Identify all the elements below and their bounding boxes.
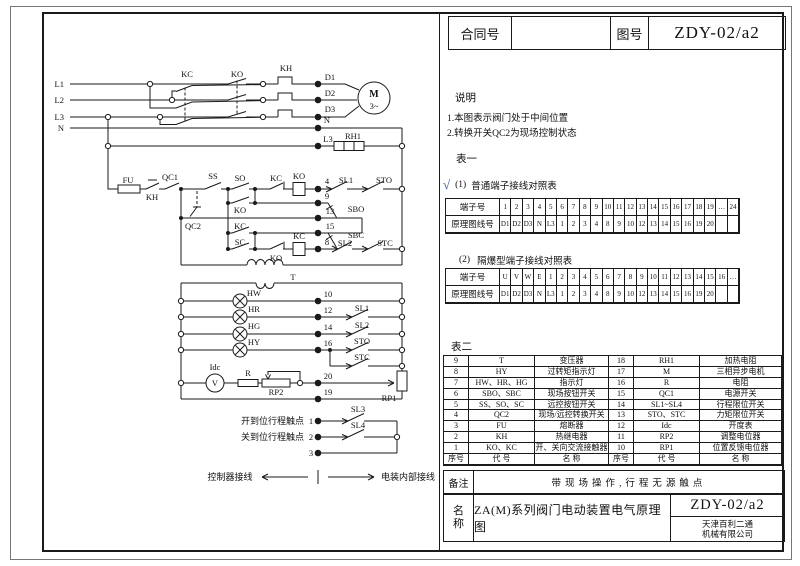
- schematic-label: 9: [325, 191, 329, 201]
- component-cell: FU: [469, 421, 535, 432]
- schematic-label: N: [324, 115, 330, 125]
- component-cell: 2: [444, 432, 469, 443]
- schematic-label: SO: [235, 173, 246, 183]
- sub1-label: (1): [455, 180, 466, 190]
- schematic-label: SL1: [355, 303, 369, 313]
- terminal-cell: 12: [671, 269, 682, 286]
- component-cell: 现场/远控转换开关: [535, 410, 609, 421]
- schematic-label: 2: [309, 432, 313, 442]
- terminal-cell: 14: [659, 286, 670, 303]
- terminal-cell: D1: [500, 286, 511, 303]
- name-label: 名 称: [444, 495, 474, 541]
- power-circuit: [70, 77, 402, 128]
- note-item: 1.本图表示阀门处于中间位置: [447, 110, 568, 124]
- terminal-cell: 16: [682, 216, 693, 233]
- terminal-cell: 16: [682, 286, 693, 303]
- component-header-cell: 序号: [609, 454, 634, 465]
- terminal-cell: D1: [500, 216, 511, 233]
- check-icon: √: [443, 177, 450, 193]
- component-header-cell: 代 号: [469, 454, 535, 465]
- terminal-cell: 2: [568, 286, 579, 303]
- component-cell: T: [469, 356, 535, 367]
- schematic-label: T: [290, 272, 296, 282]
- schematic-label: 16: [324, 338, 333, 348]
- component-cell: KH: [469, 432, 535, 443]
- schematic-label: KO: [234, 205, 246, 215]
- terminal-cell: 7: [568, 199, 579, 216]
- terminal-cell: [716, 216, 727, 233]
- schematic-label: D1: [325, 72, 335, 82]
- component-cell: 11: [609, 432, 634, 443]
- terminal-cell: 19: [694, 216, 705, 233]
- schematic-label: M: [369, 89, 379, 100]
- component-cell: 过转矩指示灯: [535, 367, 609, 378]
- terminal-cell: 14: [694, 269, 705, 286]
- component-cell: SS、SO、SC: [469, 400, 535, 411]
- schematic-label: KC: [293, 231, 305, 241]
- component-cell: 电阻: [700, 378, 782, 389]
- terminal-cell: 3: [523, 199, 534, 216]
- potentiometer-rp2: [262, 379, 290, 387]
- schematic-label: D2: [325, 88, 335, 98]
- component-cell: 4: [444, 410, 469, 421]
- terminal-row-label: 端子号: [446, 269, 500, 286]
- heater-resistor-rh1: [334, 142, 364, 151]
- table2-heading: 表二: [451, 339, 472, 354]
- transformer-primary: [181, 260, 402, 266]
- drawing-title: ZA(M)系列阀门电动装置电气原理图: [474, 495, 671, 541]
- terminal-cell: D2: [511, 216, 522, 233]
- schematic-label: R: [245, 368, 251, 378]
- terminal-cell: 16: [671, 199, 682, 216]
- schematic-label: STC: [354, 352, 370, 362]
- terminal-cell: 5: [546, 199, 557, 216]
- schematic-label: 13: [326, 206, 335, 216]
- table1-heading: 表一: [456, 151, 477, 166]
- terminal-cell: 15: [671, 286, 682, 303]
- terminal-cell: 4: [591, 286, 602, 303]
- terminal-row-label: 端子号: [446, 199, 500, 216]
- contactor-coil-ko: [293, 183, 305, 196]
- component-cell: 14: [609, 400, 634, 411]
- terminal-cell: 1: [500, 199, 511, 216]
- schematic-label: V: [212, 378, 219, 388]
- terminal-cell: 2: [511, 199, 522, 216]
- component-cell: SL1~SL4: [634, 400, 700, 411]
- component-cell: 16: [609, 378, 634, 389]
- component-cell: 指示灯: [535, 378, 609, 389]
- fuse-fu: [118, 185, 140, 193]
- terminal-cell: 20: [705, 286, 716, 303]
- terminal-cell: 10: [625, 216, 636, 233]
- schematic-label: 1: [309, 416, 313, 426]
- terminal-cell: 24: [728, 199, 739, 216]
- component-cell: 17: [609, 367, 634, 378]
- terminal-row-label: 原理图线号: [446, 286, 500, 303]
- component-cell: M: [634, 367, 700, 378]
- terminal-cell: V: [511, 269, 522, 286]
- component-cell: 位置反馈电位器: [700, 443, 782, 454]
- terminal-cell: 17: [682, 199, 693, 216]
- terminal-cell: 6: [603, 269, 614, 286]
- terminal-cell: D3: [523, 216, 534, 233]
- terminal-cell: D3: [523, 286, 534, 303]
- schematic-label: SBO: [348, 204, 365, 214]
- schematic-label: L1: [55, 79, 64, 89]
- component-cell: 12: [609, 421, 634, 432]
- component-cell: 3: [444, 421, 469, 432]
- schematic-label: 8: [325, 237, 329, 247]
- schematic-label: L3: [55, 112, 64, 122]
- component-cell: 7: [444, 378, 469, 389]
- terminal-cell: 10: [648, 269, 659, 286]
- component-cell: 9: [444, 356, 469, 367]
- terminal-cell: 1: [557, 286, 568, 303]
- component-cell: Idc: [634, 421, 700, 432]
- remarks-block: 备注 带现场操作,行程无源触点: [443, 470, 785, 494]
- terminal-cell: 1: [557, 216, 568, 233]
- sub2-label: (2): [459, 255, 470, 265]
- schematic-label: STO: [376, 175, 392, 185]
- terminal-cell: 15: [659, 199, 670, 216]
- schematic-label: HY: [248, 337, 260, 347]
- schematic-label: RP1: [382, 393, 397, 403]
- component-table: 9T变压器18RH1加热电阻8HY过转矩指示灯17M三相异步电机7HW、HR、H…: [443, 355, 783, 466]
- terminal-cell: 8: [625, 269, 636, 286]
- component-cell: 远控按钮开关: [535, 400, 609, 411]
- terminal-cell: 8: [603, 286, 614, 303]
- schematic-label: SL2: [355, 320, 369, 330]
- schematic-label: L2: [55, 95, 64, 105]
- terminal-cell: 8: [603, 216, 614, 233]
- schematic-label: Idc: [210, 362, 221, 372]
- component-header-cell: 名 称: [535, 454, 609, 465]
- component-cell: 10: [609, 443, 634, 454]
- terminal-cell: 12: [637, 216, 648, 233]
- schematic-label: KC: [270, 173, 282, 183]
- schematic-label: SL4: [351, 420, 366, 430]
- sub2-title: 隔爆型端子接线对照表: [477, 253, 572, 267]
- terminal-cell: 3: [580, 216, 591, 233]
- terminal-cell: 3: [580, 286, 591, 303]
- component-cell: 变压器: [535, 356, 609, 367]
- drawing-sheet: 合同号 图号 ZDY-02/a2: [0, 0, 800, 566]
- remarks-text: 带现场操作,行程无源触点: [474, 471, 784, 493]
- terminal-cell: [728, 216, 739, 233]
- terminal-cell: 19: [694, 286, 705, 303]
- transformer-secondary: [181, 283, 402, 289]
- component-cell: RP1: [634, 443, 700, 454]
- component-cell: KO、KC: [469, 443, 535, 454]
- component-cell: STO、STC: [634, 410, 700, 421]
- schematic-label: KC: [181, 69, 193, 79]
- schematic-label: D3: [325, 104, 335, 114]
- component-cell: 三相异步电机: [700, 367, 782, 378]
- terminal-cell: 5: [591, 269, 602, 286]
- terminal-cell: 14: [659, 216, 670, 233]
- schematic-label: 控制器接线: [207, 471, 252, 482]
- terminal-cell: 8: [580, 199, 591, 216]
- schematic-label: FU: [123, 175, 134, 185]
- schematic-label: HW: [247, 288, 261, 298]
- terminal-cell: W: [523, 269, 534, 286]
- terminal-cell: [716, 286, 727, 303]
- drawing-no: ZDY-02/a2: [671, 495, 784, 517]
- component-cell: 1: [444, 443, 469, 454]
- note-item: 2.转换开关QC2为现场控制状态: [447, 125, 577, 139]
- terminal-cell: 9: [591, 199, 602, 216]
- component-cell: 电源开关: [700, 389, 782, 400]
- terminal-cell: 12: [637, 286, 648, 303]
- component-cell: QC1: [634, 389, 700, 400]
- schematic-label: QC2: [185, 221, 201, 231]
- component-cell: SBO、SBC: [469, 389, 535, 400]
- schematic-label: KO: [293, 171, 305, 181]
- terminal-cell: E: [534, 269, 545, 286]
- schematic-label: 12: [324, 305, 333, 315]
- terminal-cell: N: [534, 216, 545, 233]
- component-cell: 6: [444, 389, 469, 400]
- terminal-cell: 11: [659, 269, 670, 286]
- terminal-cell: 2: [557, 269, 568, 286]
- terminal-cell: U: [500, 269, 511, 286]
- schematic-label: 3~: [370, 101, 379, 111]
- component-cell: 调整电位器: [700, 432, 782, 443]
- component-cell: 5: [444, 400, 469, 411]
- schematic-label: KH: [280, 63, 292, 73]
- component-cell: 行程限位开关: [700, 400, 782, 411]
- terminal-cell: …: [716, 199, 727, 216]
- terminal-cell: 4: [591, 216, 602, 233]
- terminal-row-label: 原理图线号: [446, 216, 500, 233]
- schematic-label: KO: [270, 253, 282, 263]
- terminal-cell: 7: [614, 269, 625, 286]
- component-cell: HY: [469, 367, 535, 378]
- schematic-label: KO: [231, 69, 243, 79]
- schematic-label: STO: [354, 336, 370, 346]
- potentiometer-rp1: [397, 371, 407, 391]
- terminal-cell: 9: [614, 216, 625, 233]
- schematic-label: N: [58, 123, 64, 133]
- schematic-label: 关到位行程触点: [241, 431, 304, 442]
- schematic-label: SL2: [338, 238, 352, 248]
- component-header-cell: 名 称: [700, 454, 782, 465]
- exproof-terminal-table: 端子号UVWE12345678910111213141516…原理图线号D1D2…: [445, 268, 740, 304]
- component-cell: 熔断器: [535, 421, 609, 432]
- indicator-lamps: [233, 294, 247, 357]
- schematic-label: 4: [325, 176, 330, 186]
- component-cell: HW、HR、HG: [469, 378, 535, 389]
- terminal-cell: 11: [614, 199, 625, 216]
- terminal-cell: 2: [568, 216, 579, 233]
- component-cell: 力矩限位开关: [700, 410, 782, 421]
- terminal-cell: 4: [534, 199, 545, 216]
- schematic-label: SL1: [339, 175, 353, 185]
- terminal-cell: 20: [705, 216, 716, 233]
- schematic-label: 3: [309, 448, 313, 458]
- table1-sub1-title-line: √ (1) 普通端子接线对照表: [443, 177, 557, 193]
- component-cell: RP2: [634, 432, 700, 443]
- terminal-cell: 15: [671, 216, 682, 233]
- component-header-cell: 序号: [444, 454, 469, 465]
- terminal-cell: 1: [546, 269, 557, 286]
- terminal-cell: L3: [546, 286, 557, 303]
- terminal-cell: …: [728, 269, 739, 286]
- schematic-label: 电装内部接线: [381, 471, 435, 482]
- terminal-cell: 10: [603, 199, 614, 216]
- schematic-label: 19: [324, 387, 333, 397]
- title-block: 名 称 ZA(M)系列阀门电动装置电气原理图 ZDY-02/a2 天津百利二通 …: [443, 494, 785, 542]
- terminal-cell: L3: [546, 216, 557, 233]
- terminal-cell: 13: [648, 286, 659, 303]
- terminal-cell: 4: [580, 269, 591, 286]
- terminal-cell: 9: [637, 269, 648, 286]
- contactor-coil-kc: [293, 243, 305, 256]
- wiring-boundary-legend: [262, 470, 374, 484]
- table1-sub2-title-line: (2) 隔爆型端子接线对照表: [459, 253, 572, 267]
- schematic-label: RH1: [345, 131, 361, 141]
- terminal-cell: 13: [682, 269, 693, 286]
- component-cell: R: [634, 378, 700, 389]
- component-cell: 开、关向交流接触器: [535, 443, 609, 454]
- component-cell: 热继电器: [535, 432, 609, 443]
- terminal-cell: 6: [557, 199, 568, 216]
- schematic-label: 开到位行程触点: [241, 415, 304, 426]
- schematic-label: KH: [146, 192, 158, 202]
- terminal-cell: 9: [614, 286, 625, 303]
- schematic-label: SC: [235, 237, 246, 247]
- schematic-label: L3: [323, 134, 332, 144]
- schematic-label: QC1: [162, 172, 178, 182]
- component-cell: 18: [609, 356, 634, 367]
- schematic-label: SL3: [351, 404, 365, 414]
- notes-heading: 说明: [455, 90, 476, 105]
- terminal-dots: [315, 81, 321, 456]
- terminal-cell: D2: [511, 286, 522, 303]
- terminal-cell: 13: [648, 216, 659, 233]
- terminal-cell: 16: [716, 269, 727, 286]
- component-cell: 加热电阻: [700, 356, 782, 367]
- terminal-cell: 3: [568, 269, 579, 286]
- remarks-label: 备注: [444, 471, 474, 493]
- component-cell: QC2: [469, 410, 535, 421]
- component-cell: 8: [444, 367, 469, 378]
- schematic-label: 15: [326, 221, 335, 231]
- schematic-label: HR: [248, 304, 260, 314]
- component-cell: 现场按钮开关: [535, 389, 609, 400]
- schematic-label: SS: [208, 171, 218, 181]
- schematic-label: 10: [324, 289, 333, 299]
- terminal-cell: 19: [705, 199, 716, 216]
- sub1-title: 普通端子接线对照表: [471, 178, 557, 192]
- component-cell: 开度表: [700, 421, 782, 432]
- company-name: 天津百利二通 机械有限公司: [671, 517, 784, 541]
- schematic-label: STC: [377, 238, 393, 248]
- terminal-cell: [728, 286, 739, 303]
- resistor-r: [238, 380, 258, 387]
- schematic-label: 14: [324, 322, 333, 332]
- control-circuit: [118, 180, 402, 265]
- schematic-label: HG: [248, 321, 260, 331]
- terminal-cell: 13: [637, 199, 648, 216]
- terminal-cell: N: [534, 286, 545, 303]
- terminal-cell: 15: [705, 269, 716, 286]
- component-cell: 15: [609, 389, 634, 400]
- schematic-label: RP2: [269, 387, 284, 397]
- component-cell: 13: [609, 410, 634, 421]
- ordinary-terminal-table: 端子号12345678910111213141516171819…24原理图线号…: [445, 198, 740, 234]
- schematic-label: 20: [324, 371, 333, 381]
- terminal-cell: 14: [648, 199, 659, 216]
- title-block-right: ZDY-02/a2 天津百利二通 机械有限公司: [671, 495, 784, 541]
- schematic-label: KC: [234, 221, 246, 231]
- terminal-cell: 10: [625, 286, 636, 303]
- terminal-cell: 12: [625, 199, 636, 216]
- terminal-cell: 18: [694, 199, 705, 216]
- component-header-cell: 代 号: [634, 454, 700, 465]
- component-cell: RH1: [634, 356, 700, 367]
